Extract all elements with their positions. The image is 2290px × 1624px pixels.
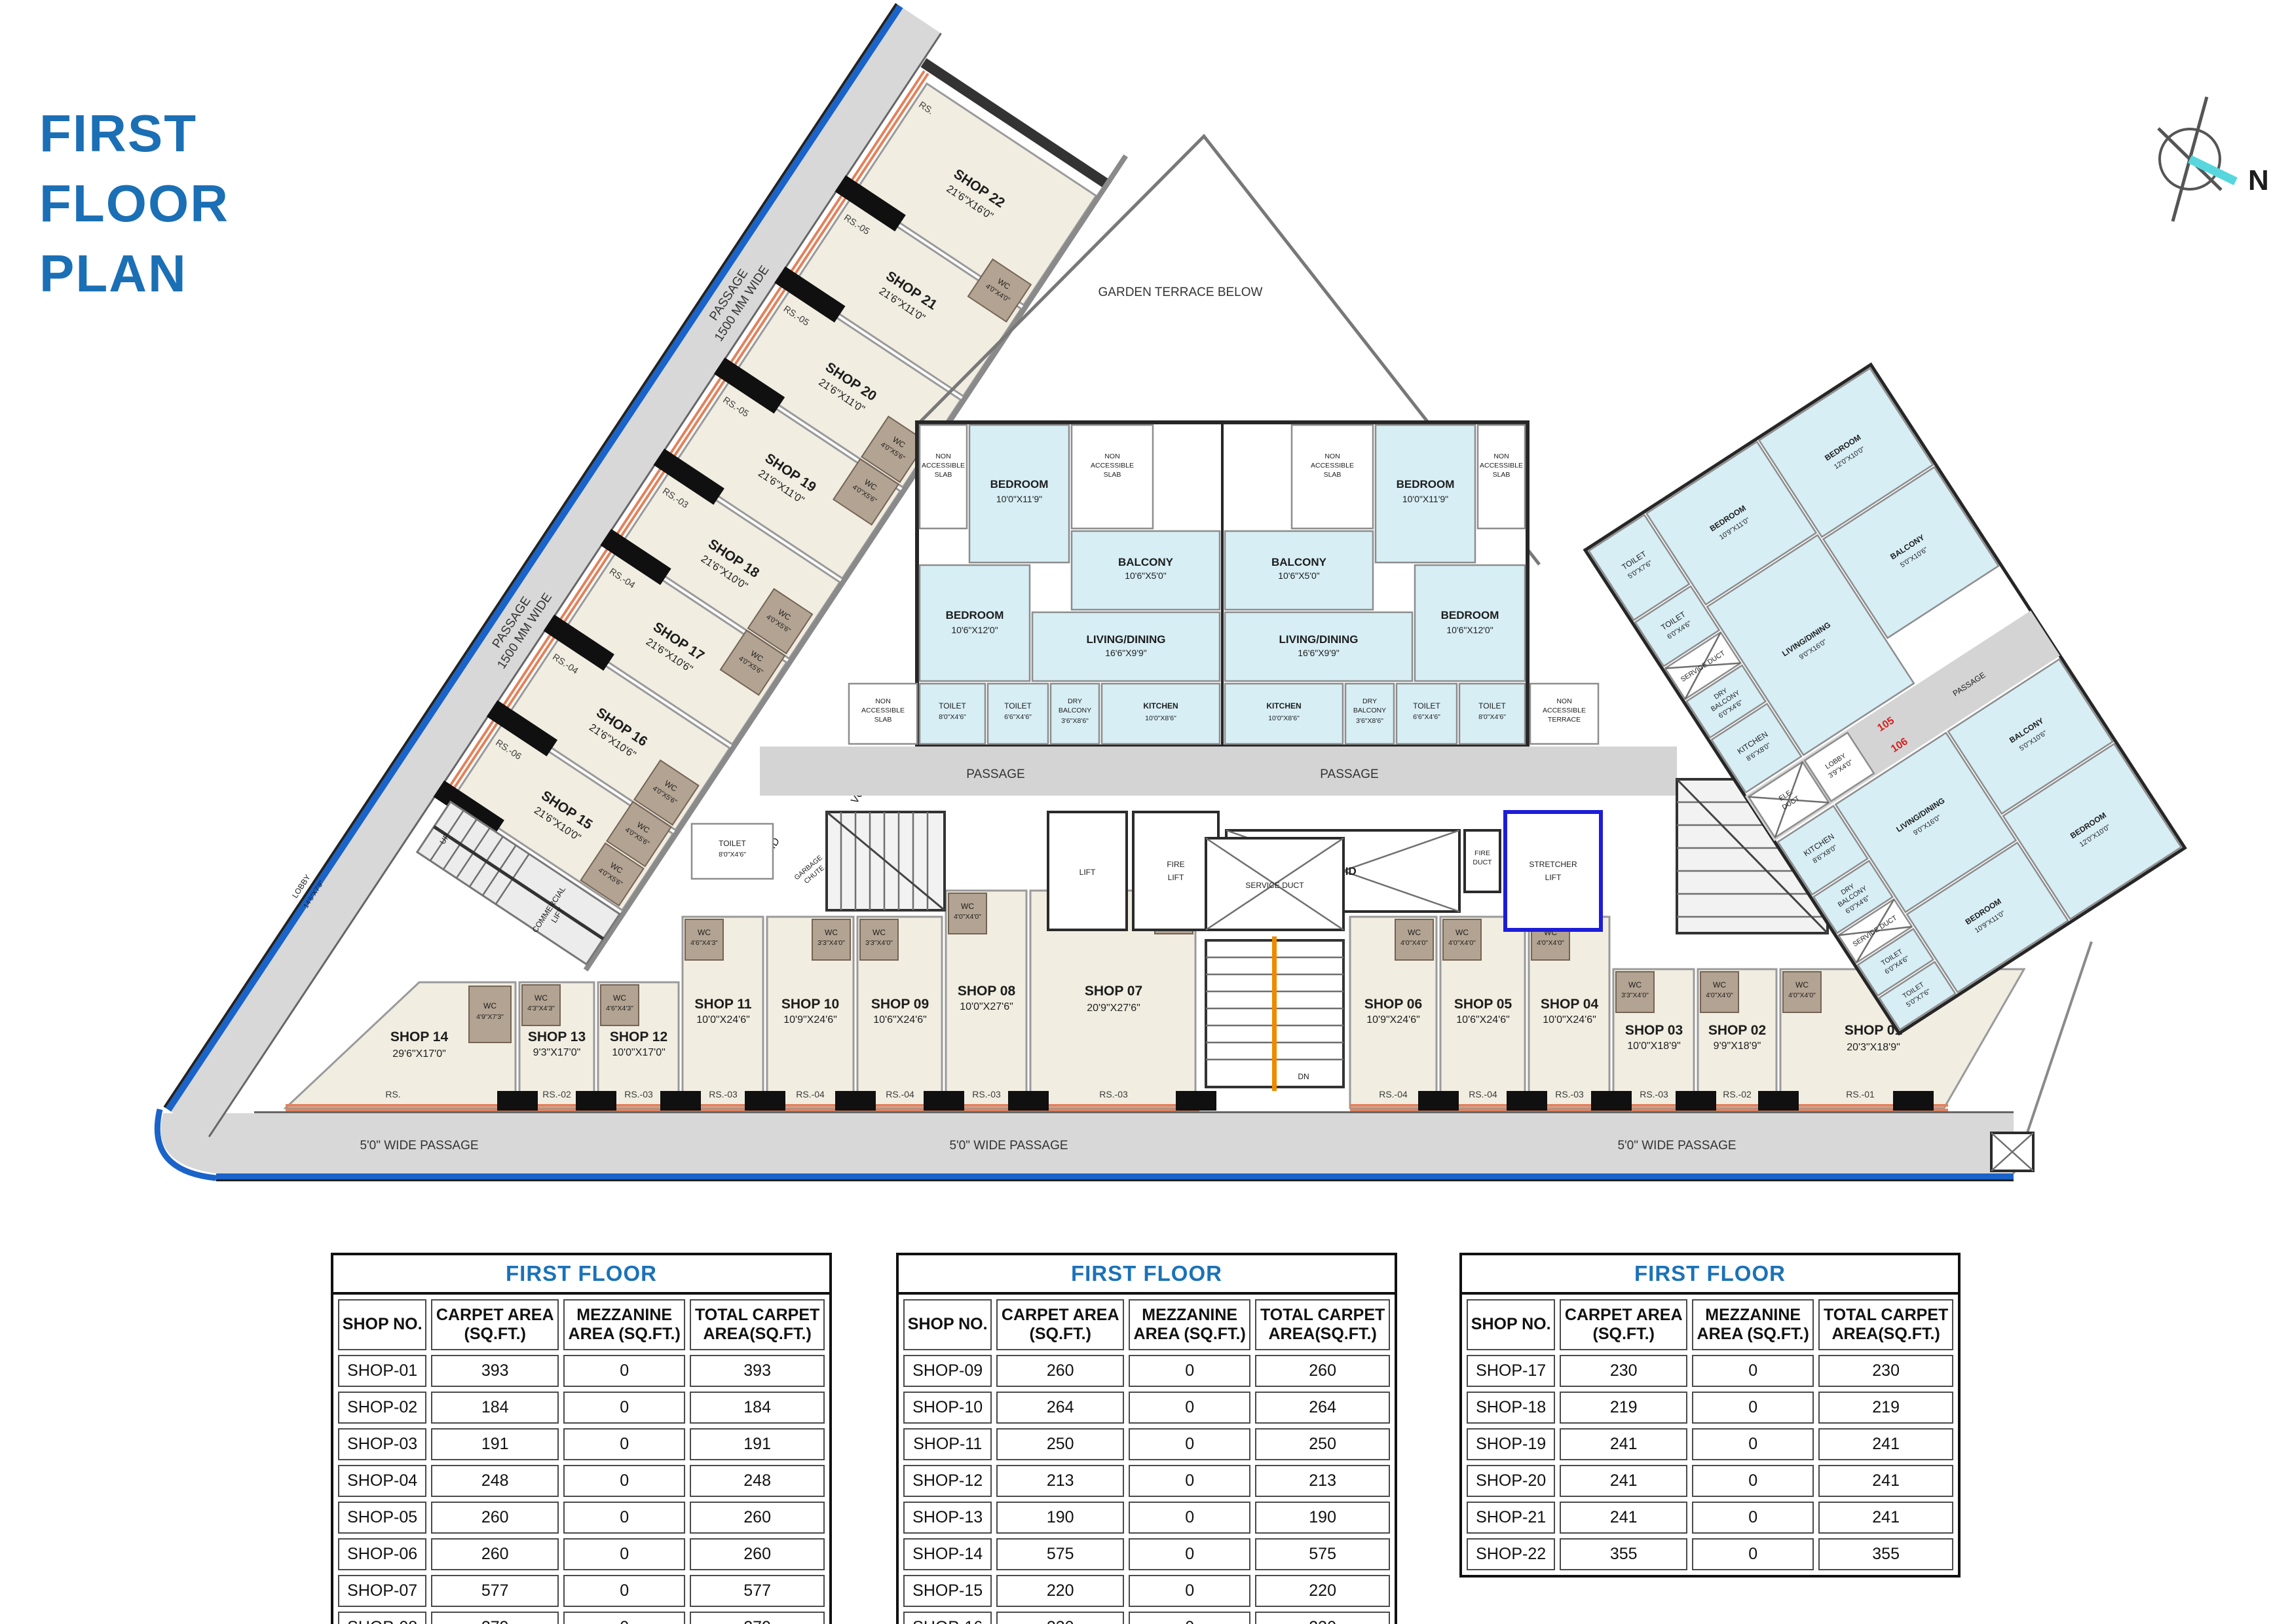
cell: 220 [996,1575,1124,1607]
rs-label: RS.-03 [1555,1089,1584,1099]
rs-label: RS. [385,1089,400,1099]
non-acc-slab: NON [1493,452,1509,460]
cell: 264 [1255,1392,1390,1424]
balcony-label: BALCONY [1118,556,1174,568]
cell: 0 [1129,1612,1250,1624]
col-total-l2: AREA(SQ.FT.) [693,1325,821,1344]
col-mezz-l2: AREA (SQ.FT.) [567,1325,682,1344]
table-row: SHOP-102640264 [903,1392,1390,1424]
col-total-l1: TOTAL CARPET [693,1306,821,1325]
shop-14-name: SHOP 14 [390,1029,449,1044]
cell: 260 [690,1502,825,1534]
shop-05-name: SHOP 05 [1454,997,1512,1012]
col-carpet-l1: CARPET AREA [1000,1306,1121,1325]
cell: 260 [431,1502,559,1534]
wc-label: WC [873,928,886,937]
cell: 0 [1129,1538,1250,1570]
central-apartment-block: NON ACCESSIBLE SLAB BEDROOM 10'0"X11'9" … [849,422,1598,766]
table-row: SHOP-212410241 [1467,1502,1953,1534]
cell: SHOP-02 [338,1392,426,1424]
col-carpet: CARPET AREA(SQ.FT.) [996,1299,1124,1350]
cell: 355 [1560,1538,1687,1570]
rs-label: RS.-04 [1469,1089,1497,1099]
cell: 0 [563,1575,685,1607]
cell: 213 [1255,1465,1390,1497]
non-acc-slab: SLAB [935,471,952,479]
cell: 241 [1560,1465,1687,1497]
cell: 0 [1129,1355,1250,1387]
non-acc-terrace: ACCESSIBLE [1543,707,1586,714]
stretcher-lift [1505,812,1601,930]
cell: 279 [690,1612,825,1624]
table-row: SHOP-162300230 [903,1612,1390,1624]
stretcher-line2: LIFT [1545,873,1562,882]
cell: 355 [1818,1538,1953,1570]
rs-label: RS.-01 [1846,1089,1875,1099]
living-label: LIVING/DINING [1087,633,1166,646]
shop-07-name: SHOP 07 [1085,984,1142,999]
table-row: SHOP-042480248 [338,1465,825,1497]
non-acc-slab: SLAB [874,716,892,724]
col-carpet-l2: (SQ.FT.) [434,1325,555,1344]
kitchen-size: 10'0"X8'6" [1145,714,1176,722]
cell: 0 [1692,1355,1814,1387]
shop-14-size: 29'6"X17'0" [392,1048,446,1060]
col-mezz-l1: MEZZANINE [1695,1306,1811,1325]
bedroom-size: 10'0"X11'9" [996,494,1042,504]
passage-label: PASSAGE [966,767,1024,781]
col-carpet-l2: (SQ.FT.) [1563,1325,1684,1344]
shop-01-size: 20'3"X18'9" [1847,1042,1900,1053]
fire-duct-line1: FIRE [1474,849,1490,857]
cell: 0 [563,1502,685,1534]
cell: 220 [1255,1575,1390,1607]
cell: 575 [1255,1538,1390,1570]
fire-lift-line1: FIRE [1167,860,1184,869]
cell: 0 [563,1392,685,1424]
table-row: SHOP-082790279 [338,1612,825,1624]
wc-size: 4'0"X4'0" [1448,939,1476,947]
wc-label: WC [1408,928,1421,937]
non-acc-slab: ACCESSIBLE [1480,462,1523,470]
wc-label: WC [483,1001,497,1010]
bedroom-label: BEDROOM [990,478,1049,490]
table-shops-1-8: FIRST FLOOR SHOP NO. CARPET AREA(SQ.FT.)… [331,1253,832,1624]
cell: 190 [996,1502,1124,1534]
shop-13-name: SHOP 13 [528,1029,586,1044]
table-row: SHOP-131900190 [903,1502,1390,1534]
cell: 393 [431,1355,559,1387]
bedroom-size: 10'6"X12'0" [1446,625,1493,635]
rs-label: RS.-04 [1379,1089,1408,1099]
dn-label: DN [1298,1072,1309,1081]
dry-balcony-size: 3'6"X8'6" [1356,717,1383,725]
toilet-size: 6'6"X4'6" [1004,713,1032,721]
wc-size: 4'6"X4'3" [690,939,718,947]
cell: 248 [690,1465,825,1497]
non-acc-slab: NON [1324,452,1340,460]
wc-label: WC [1628,980,1642,989]
non-acc-terrace: TERRACE [1548,716,1581,724]
wc-label: WC [1455,928,1469,937]
wc-size: 4'3"X4'3" [527,1005,555,1012]
col-carpet: CARPET AREA(SQ.FT.) [431,1299,559,1350]
cell: 230 [996,1612,1124,1624]
toilet-size: 8'0"X4'6" [1478,713,1506,721]
cell: 191 [431,1428,559,1460]
table-row: SHOP-122130213 [903,1465,1390,1497]
wc-size: 4'0"X4'0" [1788,991,1816,999]
cell: 191 [690,1428,825,1460]
cell: SHOP-07 [338,1575,426,1607]
shop-10-name: SHOP 10 [781,997,839,1012]
rs-label: RS.-03 [624,1089,653,1099]
non-acc-slab: ACCESSIBLE [861,707,905,714]
table-row: SHOP-223550355 [1467,1538,1953,1570]
cell: SHOP-01 [338,1355,426,1387]
col-shop-no: SHOP NO. [1467,1299,1555,1350]
shop-11-name: SHOP 11 [694,997,751,1012]
wc-label: WC [1713,980,1726,989]
col-total-l2: AREA(SQ.FT.) [1822,1325,1950,1344]
cell: 213 [996,1465,1124,1497]
cell: 393 [690,1355,825,1387]
shop-13-size: 9'3"X17'0" [533,1047,581,1058]
cell: 264 [996,1392,1124,1424]
col-shop-no: SHOP NO. [338,1299,426,1350]
shop-03-size: 10'0"X18'9" [1627,1041,1681,1052]
rs-label: RS.-02 [542,1089,571,1099]
wc-label: WC [698,928,711,937]
table-shops-9-16: FIRST FLOOR SHOP NO. CARPET AREA(SQ.FT.)… [896,1253,1397,1624]
table-title: FIRST FLOOR [899,1255,1395,1295]
rs-label: RS.-04 [796,1089,825,1099]
non-acc-slab: NON [935,452,950,460]
kitchen [1225,684,1343,744]
cell: 0 [1692,1502,1814,1534]
north-compass-icon: N [2158,97,2269,221]
table-row: SHOP-021840184 [338,1392,825,1424]
wc-size: 3'3"X4'0" [1621,991,1649,999]
col-mezz-l1: MEZZANINE [567,1306,682,1325]
dry-balcony-label: DRY [1362,697,1377,705]
rs-label: RS.-03 [972,1089,1001,1099]
cell: 260 [690,1538,825,1570]
wc-size: 3'3"X4'0" [865,939,893,947]
rs-label: RS.-03 [709,1089,738,1099]
balcony-label: BALCONY [1271,556,1327,568]
non-acc-slab: ACCESSIBLE [922,462,965,470]
cell: 230 [1255,1612,1390,1624]
col-total: TOTAL CARPETAREA(SQ.FT.) [1255,1299,1390,1350]
cell: SHOP-16 [903,1612,992,1624]
shop-03-name: SHOP 03 [1625,1023,1683,1038]
non-acc-slab: NON [875,697,890,705]
shop-02-size: 9'9"X18'9" [1714,1041,1761,1052]
shop-10-size: 10'9"X24'6" [783,1014,837,1025]
rs-label: RS.-04 [886,1089,914,1099]
cell: SHOP-04 [338,1465,426,1497]
rs-label: RS.-02 [1723,1089,1752,1099]
cell: 260 [431,1538,559,1570]
wide-passage-label: 5'0" WIDE PASSAGE [1617,1139,1736,1153]
cell: 0 [563,1538,685,1570]
col-mezz-l1: MEZZANINE [1132,1306,1247,1325]
cell: 219 [1818,1392,1953,1424]
cell: 230 [1560,1355,1687,1387]
passage-label: PASSAGE [1320,767,1378,781]
cell: SHOP-09 [903,1355,992,1387]
living-dining [1032,612,1220,681]
cell: 241 [1560,1428,1687,1460]
kitchen-label: KITCHEN [1143,701,1178,710]
cell: 577 [431,1575,559,1607]
table-row: SHOP-052600260 [338,1502,825,1534]
cell: SHOP-22 [1467,1538,1555,1570]
cell: SHOP-19 [1467,1428,1555,1460]
cell: 250 [1255,1428,1390,1460]
cell: 0 [1129,1428,1250,1460]
floor-plan-drawing: PASSAGE 1500 MM WIDE PASSAGE 1500 MM WID… [0,0,2290,1218]
wc-size: 3'3"X4'0" [817,939,845,947]
table-row: SHOP-112500250 [903,1428,1390,1460]
garbage-chute-label: GARBAGE CHUTE [793,854,829,889]
cell: SHOP-18 [1467,1392,1555,1424]
cell: 241 [1818,1502,1953,1534]
shop-08-name: SHOP 08 [958,984,1016,999]
cell: 250 [996,1428,1124,1460]
rs-label: RS.-03 [1640,1089,1668,1099]
cell: 184 [431,1392,559,1424]
shop-09-size: 10'6"X24'6" [873,1014,927,1025]
table-row: SHOP-145750575 [903,1538,1390,1570]
cell: 0 [1129,1502,1250,1534]
table-row: SHOP-152200220 [903,1575,1390,1607]
toilet-label: TOILET [1478,701,1506,710]
table-row: SHOP-013930393 [338,1355,825,1387]
dry-balcony-label: BALCONY [1353,707,1386,714]
wc-size: 4'0"X4'0" [1400,939,1428,947]
non-acc-slab: SLAB [1324,471,1342,479]
shop-12-name: SHOP 12 [610,1029,667,1044]
living-size: 16'6"X9'9" [1105,648,1147,658]
cell: SHOP-15 [903,1575,992,1607]
cell: 0 [1129,1575,1250,1607]
non-acc-slab: SLAB [1104,471,1121,479]
dry-balcony-size: 3'6"X8'6" [1061,717,1089,725]
bedroom-size: 10'6"X12'0" [951,625,998,635]
shop-12-size: 10'0"X17'0" [612,1047,666,1058]
col-total: TOTAL CARPETAREA(SQ.FT.) [690,1299,825,1350]
col-mezz: MEZZANINEAREA (SQ.FT.) [1129,1299,1250,1350]
table-shops-17-22: FIRST FLOOR SHOP NO. CARPET AREA(SQ.FT.)… [1459,1253,1961,1578]
bedroom [920,565,1030,681]
wc-size: 4'0"X4'0" [954,913,981,921]
toilet-label: TOILET [719,839,746,848]
first-floor-plan-sheet: FIRST FLOOR PLAN PASSAGE 1500 MM WIDE PA… [0,0,2290,1624]
cell: 248 [431,1465,559,1497]
col-shop-no: SHOP NO. [903,1299,992,1350]
cell: SHOP-17 [1467,1355,1555,1387]
toilet-size: 8'0"X4'6" [939,713,966,721]
bedroom [1415,565,1525,681]
toilet-label: TOILET [939,701,966,710]
cell: 0 [1692,1428,1814,1460]
cell: 219 [1560,1392,1687,1424]
north-label: N [2248,164,2269,196]
col-carpet-l1: CARPET AREA [434,1306,555,1325]
wc-label: WC [1795,980,1809,989]
table-title: FIRST FLOOR [1462,1255,1958,1295]
wc-size: 4'0"X4'0" [1706,991,1733,999]
cell: SHOP-14 [903,1538,992,1570]
col-mezz-l2: AREA (SQ.FT.) [1132,1325,1247,1344]
cell: 0 [563,1355,685,1387]
service-duct-label: SERVICE DUCT [1245,881,1304,890]
cell: 279 [431,1612,559,1624]
fire-lift-line2: LIFT [1168,873,1184,882]
living-dining [1225,612,1412,681]
kitchen-size: 10'0"X8'6" [1268,714,1300,722]
cell: 184 [690,1392,825,1424]
cell: 0 [563,1428,685,1460]
col-mezz-l2: AREA (SQ.FT.) [1695,1325,1811,1344]
shop-06-name: SHOP 06 [1364,997,1422,1012]
shop-11-size: 10'0"X24'6" [696,1014,750,1025]
non-acc-slab: ACCESSIBLE [1311,462,1354,470]
col-carpet-l1: CARPET AREA [1563,1306,1684,1325]
cell: 577 [690,1575,825,1607]
kitchen [1102,684,1220,744]
cell: 190 [1255,1502,1390,1534]
col-total-l1: TOTAL CARPET [1258,1306,1387,1325]
cell: 260 [1255,1355,1390,1387]
bedroom-label: BEDROOM [1397,478,1455,490]
bedroom-label: BEDROOM [1441,609,1499,621]
garden-terrace-label: GARDEN TERRACE BELOW [1098,286,1263,299]
wide-passage-label: 5'0" WIDE PASSAGE [360,1139,478,1153]
rs-label: RS.-03 [1099,1089,1128,1099]
toilet-label: TOILET [1004,701,1032,710]
wc-size: 4'0"X4'0" [1537,939,1564,947]
wc-label: WC [825,928,838,937]
non-acc-slab: SLAB [1493,471,1511,479]
cell: SHOP-12 [903,1465,992,1497]
table-row: SHOP-182190219 [1467,1392,1953,1424]
col-total: TOTAL CARPETAREA(SQ.FT.) [1818,1299,1953,1350]
table-row: SHOP-062600260 [338,1538,825,1570]
table-row: SHOP-092600260 [903,1355,1390,1387]
cell: 241 [1818,1428,1953,1460]
bedroom-label: BEDROOM [946,609,1004,621]
cell: SHOP-21 [1467,1502,1555,1534]
cell: SHOP-13 [903,1502,992,1534]
balcony-size: 10'6"X5'0" [1125,570,1167,581]
toilet-size: 6'6"X4'6" [1413,713,1440,721]
non-acc-slab: NON [1104,452,1119,460]
cell: SHOP-10 [903,1392,992,1424]
shop-04-size: 10'0"X24'6" [1543,1014,1596,1025]
shop-04-name: SHOP 04 [1541,997,1599,1012]
cell: 0 [1692,1392,1814,1424]
table-row: SHOP-031910191 [338,1428,825,1460]
cell: SHOP-06 [338,1538,426,1570]
shop-08-size: 10'0"X27'6" [960,1001,1013,1012]
col-carpet: CARPET AREA(SQ.FT.) [1560,1299,1687,1350]
dry-balcony-label: DRY [1068,697,1082,705]
cell: SHOP-08 [338,1612,426,1624]
shop-02-name: SHOP 02 [1708,1023,1766,1038]
shop-09-name: SHOP 09 [871,997,929,1012]
cell: 230 [1818,1355,1953,1387]
table-title: FIRST FLOOR [333,1255,829,1295]
dry-balcony-label: BALCONY [1059,707,1091,714]
wide-passage-label: 5'0" WIDE PASSAGE [949,1139,1068,1153]
cell: 575 [996,1538,1124,1570]
toilet-label: TOILET [1413,701,1440,710]
shop-05-size: 10'6"X24'6" [1456,1014,1510,1025]
cell: 241 [1560,1502,1687,1534]
lift-label: LIFT [1079,868,1096,877]
cell: 241 [1818,1465,1953,1497]
table-row: SHOP-192410241 [1467,1428,1953,1460]
balcony-size: 10'6"X5'0" [1278,570,1320,581]
col-mezz: MEZZANINEAREA (SQ.FT.) [563,1299,685,1350]
cell: 260 [996,1355,1124,1387]
bedroom-size: 10'0"X11'9" [1402,494,1448,504]
living-size: 16'6"X9'9" [1298,648,1340,658]
cell: 0 [563,1612,685,1624]
col-total-l1: TOTAL CARPET [1822,1306,1950,1325]
cell: 0 [1692,1538,1814,1570]
kitchen-label: KITCHEN [1266,701,1301,710]
living-label: LIVING/DINING [1279,633,1359,646]
wc-label: WC [535,993,548,1003]
non-acc-slab: ACCESSIBLE [1091,462,1134,470]
shop-07-size: 20'9"X27'6" [1087,1003,1140,1014]
cell: SHOP-05 [338,1502,426,1534]
wc-size: 4'9"X7'3" [476,1013,504,1021]
cell: SHOP-20 [1467,1465,1555,1497]
table-row: SHOP-075770577 [338,1575,825,1607]
service-duct-stair: SERVICE DUCT DN [1206,838,1343,1091]
wc-label: WC [613,993,626,1003]
table-row: SHOP-172300230 [1467,1355,1953,1387]
col-total-l2: AREA(SQ.FT.) [1258,1325,1387,1344]
col-mezz: MEZZANINEAREA (SQ.FT.) [1692,1299,1814,1350]
table-row: SHOP-202410241 [1467,1465,1953,1497]
cell: 0 [1129,1465,1250,1497]
wc-size: 4'6"X4'3" [606,1005,633,1012]
corner-box [1991,1133,2033,1171]
cell: SHOP-03 [338,1428,426,1460]
cell: 0 [563,1465,685,1497]
toilet-size: 8'0"X4'6" [719,851,746,858]
shop-06-size: 10'9"X24'6" [1366,1014,1420,1025]
wc-label: WC [961,902,974,911]
cell: SHOP-11 [903,1428,992,1460]
fire-duct-line2: DUCT [1473,858,1492,866]
non-acc-terrace: NON [1556,697,1571,705]
stretcher-line1: STRETCHER [1529,860,1577,869]
col-carpet-l2: (SQ.FT.) [1000,1325,1121,1344]
right-apartment-block: TOILET 5'0"X7'6" TOILET 6'0"X4'6" SERVIC… [1585,365,2185,1033]
cell: 0 [1692,1465,1814,1497]
cell: 0 [1129,1392,1250,1424]
